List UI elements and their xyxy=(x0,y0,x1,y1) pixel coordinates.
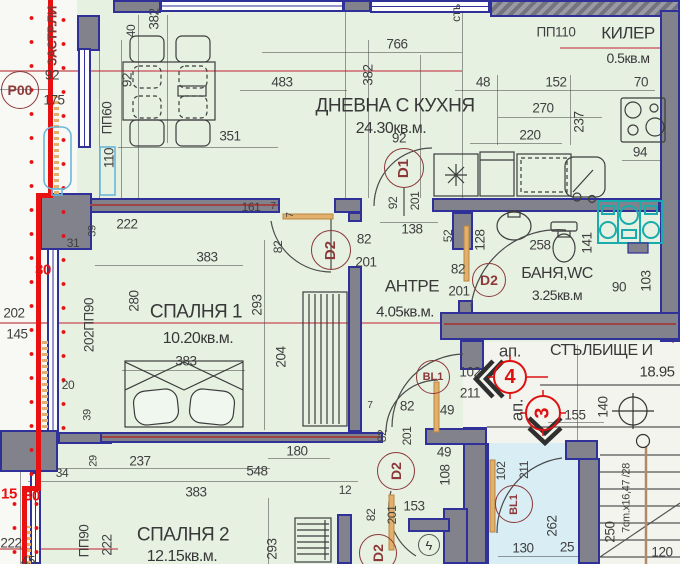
marker-D2: D2 xyxy=(359,534,397,564)
marker-D2: D2 xyxy=(377,452,415,490)
marker-3: 3 xyxy=(525,395,561,431)
marker-D1: D1 xyxy=(384,148,424,188)
marker-4: 4 xyxy=(493,360,527,394)
marker-Р00: Р00 xyxy=(1,71,39,109)
floor-plan: ДНЕВНА С КУХНЯ 24.30кв.м. СПАЛНЯ 1 10.20… xyxy=(0,0,680,564)
marker-BL1: BL1 xyxy=(416,360,450,394)
marker-ϟ: ϟ xyxy=(418,534,440,556)
marker-D2: D2 xyxy=(311,230,351,270)
marker-layer: Р00D1D2D2D2D2BL1BL143ϟ xyxy=(0,0,680,564)
marker-D2: D2 xyxy=(472,263,506,297)
marker-BL1: BL1 xyxy=(495,485,533,523)
